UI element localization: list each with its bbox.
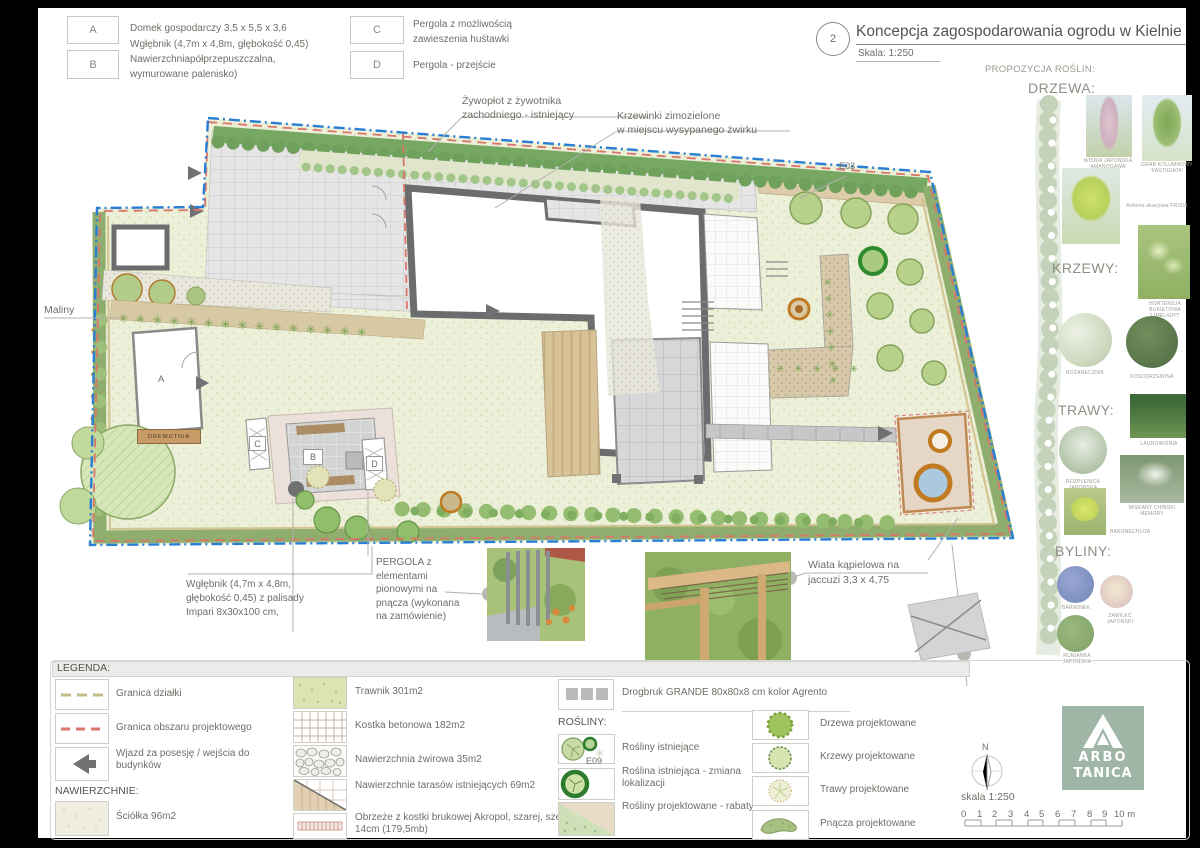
annotation-maliny: Maliny	[44, 304, 74, 318]
legend-label: Nawierzchnie tarasów istniejących 69m2	[355, 780, 570, 792]
plants-panel-title: PROPOZYCJA ROŚLIN:	[985, 64, 1095, 76]
drawing-number-badge: 2	[816, 22, 850, 56]
swatch-pnacza-proj	[752, 810, 809, 840]
vine-strip	[1046, 100, 1053, 655]
key-b-letter: B	[89, 59, 96, 71]
swatch-trawnik	[293, 677, 347, 709]
annotation-hedge: Żywopłot z żywotnika zachodniego - istni…	[462, 94, 574, 122]
legend-label: Rośliny istniejące	[622, 742, 699, 754]
heading-drzewa: DRZEWA:	[1028, 80, 1096, 96]
swatch-krzewy-proj	[752, 743, 809, 773]
photo-grab	[1142, 95, 1192, 161]
plan-marker-d: D	[366, 456, 383, 471]
swatch-granica-dzialki	[55, 679, 109, 710]
caption-barwinek: BARWINEK	[1054, 605, 1098, 611]
swatch-obrzeze	[293, 813, 347, 839]
relocated-plant-e09	[860, 248, 886, 274]
caption-zawilec: ZAWILEC JAPOŃSKI	[1096, 613, 1144, 625]
paving-photo	[908, 593, 990, 660]
swatch-trawy-proj	[752, 776, 809, 806]
scale-rule	[856, 61, 940, 62]
key-box-c: C	[350, 16, 404, 44]
drewutnia-label: DREWUTNIA	[137, 429, 201, 444]
legend-label: Drzewa projektowane	[820, 718, 916, 730]
photo-wisnia	[1086, 95, 1132, 157]
title-rule	[856, 44, 1186, 45]
legend-label: Krzewy projektowane	[820, 751, 915, 763]
legend-label: Pnącza projektowane	[820, 818, 916, 830]
caption-hakonechloa: HAKONECHLOA	[1100, 529, 1160, 535]
legend-label: Wjazd za posesję / wejścia do budynków	[116, 748, 291, 772]
photo-robinia	[1062, 168, 1120, 244]
scale-text: skala 1:250	[961, 791, 1015, 805]
key-d-letter: D	[373, 59, 381, 71]
key-b-text: Wgłębnik (4,7m x 4,8m, głębokość 0,45) N…	[130, 37, 308, 82]
legend-label: Nawierzchnia żwirowa 35m2	[355, 754, 482, 766]
legend-label: Trawnik 301m2	[355, 686, 423, 698]
photo-kosodrzewina	[1126, 316, 1178, 368]
annotation-wiata: Wiata kąpielowa na jaccuzi 3,3 x 4,75	[808, 558, 899, 588]
photo-runianka	[1057, 615, 1094, 652]
jacuzzi	[895, 411, 974, 515]
drawing-sheet-frame: ✳✳✳✳✳✳✳✳✳✳✳✳✳✳✳	[0, 0, 1200, 848]
scale-label: Skala: 1:250	[858, 47, 914, 60]
key-box-b: B	[67, 50, 119, 79]
swatch-granica-obszaru	[55, 713, 109, 744]
caption-rozanecznik: RÓŻANECZNIK	[1056, 370, 1114, 376]
swatch-sciolka	[55, 801, 109, 836]
logo-line1: ARBO	[1062, 750, 1144, 767]
key-a-letter: A	[89, 24, 96, 36]
plan-marker-a: A	[158, 374, 164, 386]
legend-label: Obrzeże z kostki brukowej Akropol, szare…	[355, 812, 570, 836]
gate-photo	[487, 548, 585, 641]
photo-zawilec	[1100, 575, 1133, 608]
legend-title: LEGENDA:	[57, 662, 110, 676]
pergola-photo	[645, 552, 791, 662]
caption-miskant: MISKANT CHIŃSKI MEMORY	[1118, 505, 1186, 517]
swatch-tarasy	[293, 779, 347, 811]
key-c-text: Pergola z możliwością zawieszenia huśtaw…	[413, 17, 512, 47]
swatch-wjazd	[55, 747, 109, 781]
photo-barwinek	[1057, 566, 1094, 603]
surfaces-heading: NAWIERZCHNIE:	[55, 785, 139, 799]
bird-bath	[789, 299, 809, 319]
annotation-pergola: PERGOLA z elementami pionowymi na pnącza…	[376, 556, 459, 624]
caption-laurowisnia: LAUROWIŚNIA	[1130, 441, 1188, 447]
swatch-drogbruk	[558, 679, 614, 710]
logo-line2: TANICA	[1062, 766, 1144, 783]
swatch-drzewa-proj	[752, 710, 809, 740]
key-a-text: Domek gospodarczy 3,5 x 5,5 x 3,6	[130, 22, 287, 35]
key-box-d: D	[350, 51, 404, 79]
drawing-number: 2	[830, 33, 836, 45]
legend-label: Granica działki	[116, 688, 182, 700]
legend-label: Drogbruk GRANDE 80x80x8 cm kolor Agrento	[622, 687, 827, 699]
annotation-e03: E03	[839, 161, 855, 173]
caption-kosodrzewina: KOSODRZEWINA	[1124, 374, 1180, 380]
legend-label: Granica obszaru projektowego	[116, 722, 294, 734]
swatch-zwir	[293, 745, 347, 777]
page-title: Koncepcja zagospodarowania ogrodu w Kiel…	[856, 22, 1182, 42]
svg-text:✳✳✳✳✳: ✳✳✳✳✳	[776, 364, 868, 375]
plan-marker-b: B	[303, 449, 323, 465]
swatch-e09	[558, 768, 615, 800]
swatch-kostka	[293, 711, 347, 743]
key-d-text: Pergola - przejście	[413, 59, 496, 72]
photo-hakonechloa	[1064, 488, 1106, 535]
photo-rozanecznik	[1058, 313, 1112, 367]
legend-label: Ściółka 96m2	[116, 811, 176, 823]
building-a	[133, 328, 202, 433]
small-outbuilding	[114, 227, 167, 268]
annotation-krzewinki: Krzewinki zimozielone w miejscu wysypane…	[617, 109, 757, 137]
caption-grab: GRAB KOLUMNOWY 'FASTIGIATA'	[1140, 162, 1194, 174]
legend-divider	[622, 711, 850, 712]
legend-label: Trawy projektowane	[820, 784, 909, 796]
photo-rozplenica	[1059, 426, 1107, 474]
heading-byliny: BYLINY:	[1055, 543, 1111, 559]
photo-laurowisnia	[1130, 394, 1186, 438]
photo-hortensja	[1138, 225, 1190, 299]
legend-label: Roślina istniejąca - zmiana lokalizacji	[622, 766, 772, 790]
heading-krzewy: KRZEWY:	[1052, 260, 1119, 276]
caption-robinia: Robinia akacjowa FRISIA	[1124, 203, 1190, 209]
key-c-letter: C	[373, 24, 381, 36]
swatch-rabaty	[558, 802, 615, 836]
photo-miskant	[1120, 455, 1184, 503]
annotation-wglebnik: Wgłębnik (4,7m x 4,8m, głębokość 0,45) z…	[186, 578, 304, 620]
plan-marker-c: C	[249, 436, 266, 451]
key-box-a: A	[67, 16, 119, 44]
heading-trawy: TRAWY:	[1058, 402, 1114, 418]
north-label: N	[982, 742, 989, 754]
legend-title-bar	[52, 661, 970, 677]
legend-label: Kostka betonowa 182m2	[355, 720, 465, 732]
plants-heading: ROŚLINY:	[558, 716, 606, 730]
